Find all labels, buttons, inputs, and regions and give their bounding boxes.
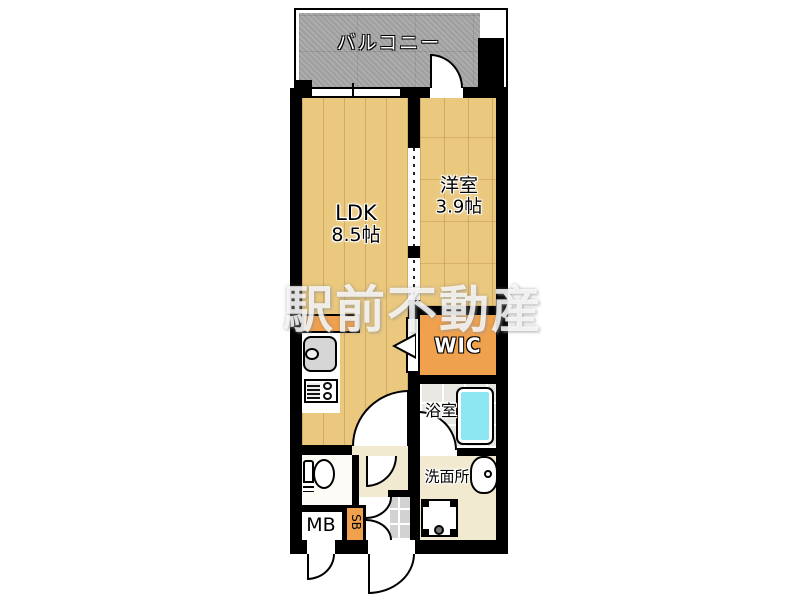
pan-corner-mark (450, 501, 456, 507)
wall (388, 490, 420, 497)
ldk-label-text: LDK (331, 201, 380, 225)
stove-grill-icon (307, 383, 320, 399)
balcony-door-threshold (430, 87, 463, 98)
bathroom-label: 浴室 (425, 402, 457, 420)
mb-door-gap (307, 540, 335, 554)
bedroom-label-text: 洋室 (436, 176, 483, 198)
balcony-label: バルコニー (337, 33, 442, 55)
bedroom-size: 3.9帖 (436, 198, 483, 219)
wall (352, 455, 359, 505)
faucet-icon (305, 348, 319, 360)
washbasin-drain-icon (484, 470, 492, 478)
toilet-paper-holder-icon (303, 481, 314, 492)
stove-burner-icon (323, 392, 332, 400)
washroom-label: 洗面所 (424, 468, 469, 485)
bedroom-label: 洋室 3.9帖 (436, 176, 483, 219)
bathtub-icon (456, 387, 494, 445)
ldk-label: LDK 8.5帖 (331, 201, 380, 247)
pan-corner-mark (423, 529, 429, 535)
watermark: 駅前不動産 (283, 270, 543, 342)
wall (408, 246, 420, 258)
toilet-bowl-icon (313, 459, 335, 489)
pan-corner-mark (423, 501, 429, 507)
ldk-window (312, 87, 400, 98)
pan-corner-mark (450, 529, 456, 535)
shoe-box-label: SB (348, 514, 362, 530)
wall (302, 445, 352, 455)
entry-door-gap (368, 540, 415, 554)
wall (408, 375, 496, 384)
entry-door-arc (368, 554, 415, 594)
floor-plan: バルコニー LDK 8.5帖 洋室 3.9帖 WIC 浴室 洗面所 MB SB … (0, 0, 800, 600)
meter-box-label: MB (306, 515, 335, 537)
ldk-size: 8.5帖 (331, 225, 380, 247)
pan-drain-icon (434, 525, 444, 535)
wall (408, 88, 420, 148)
mb-door-arc (307, 554, 335, 580)
stove-burner-icon (323, 382, 332, 390)
